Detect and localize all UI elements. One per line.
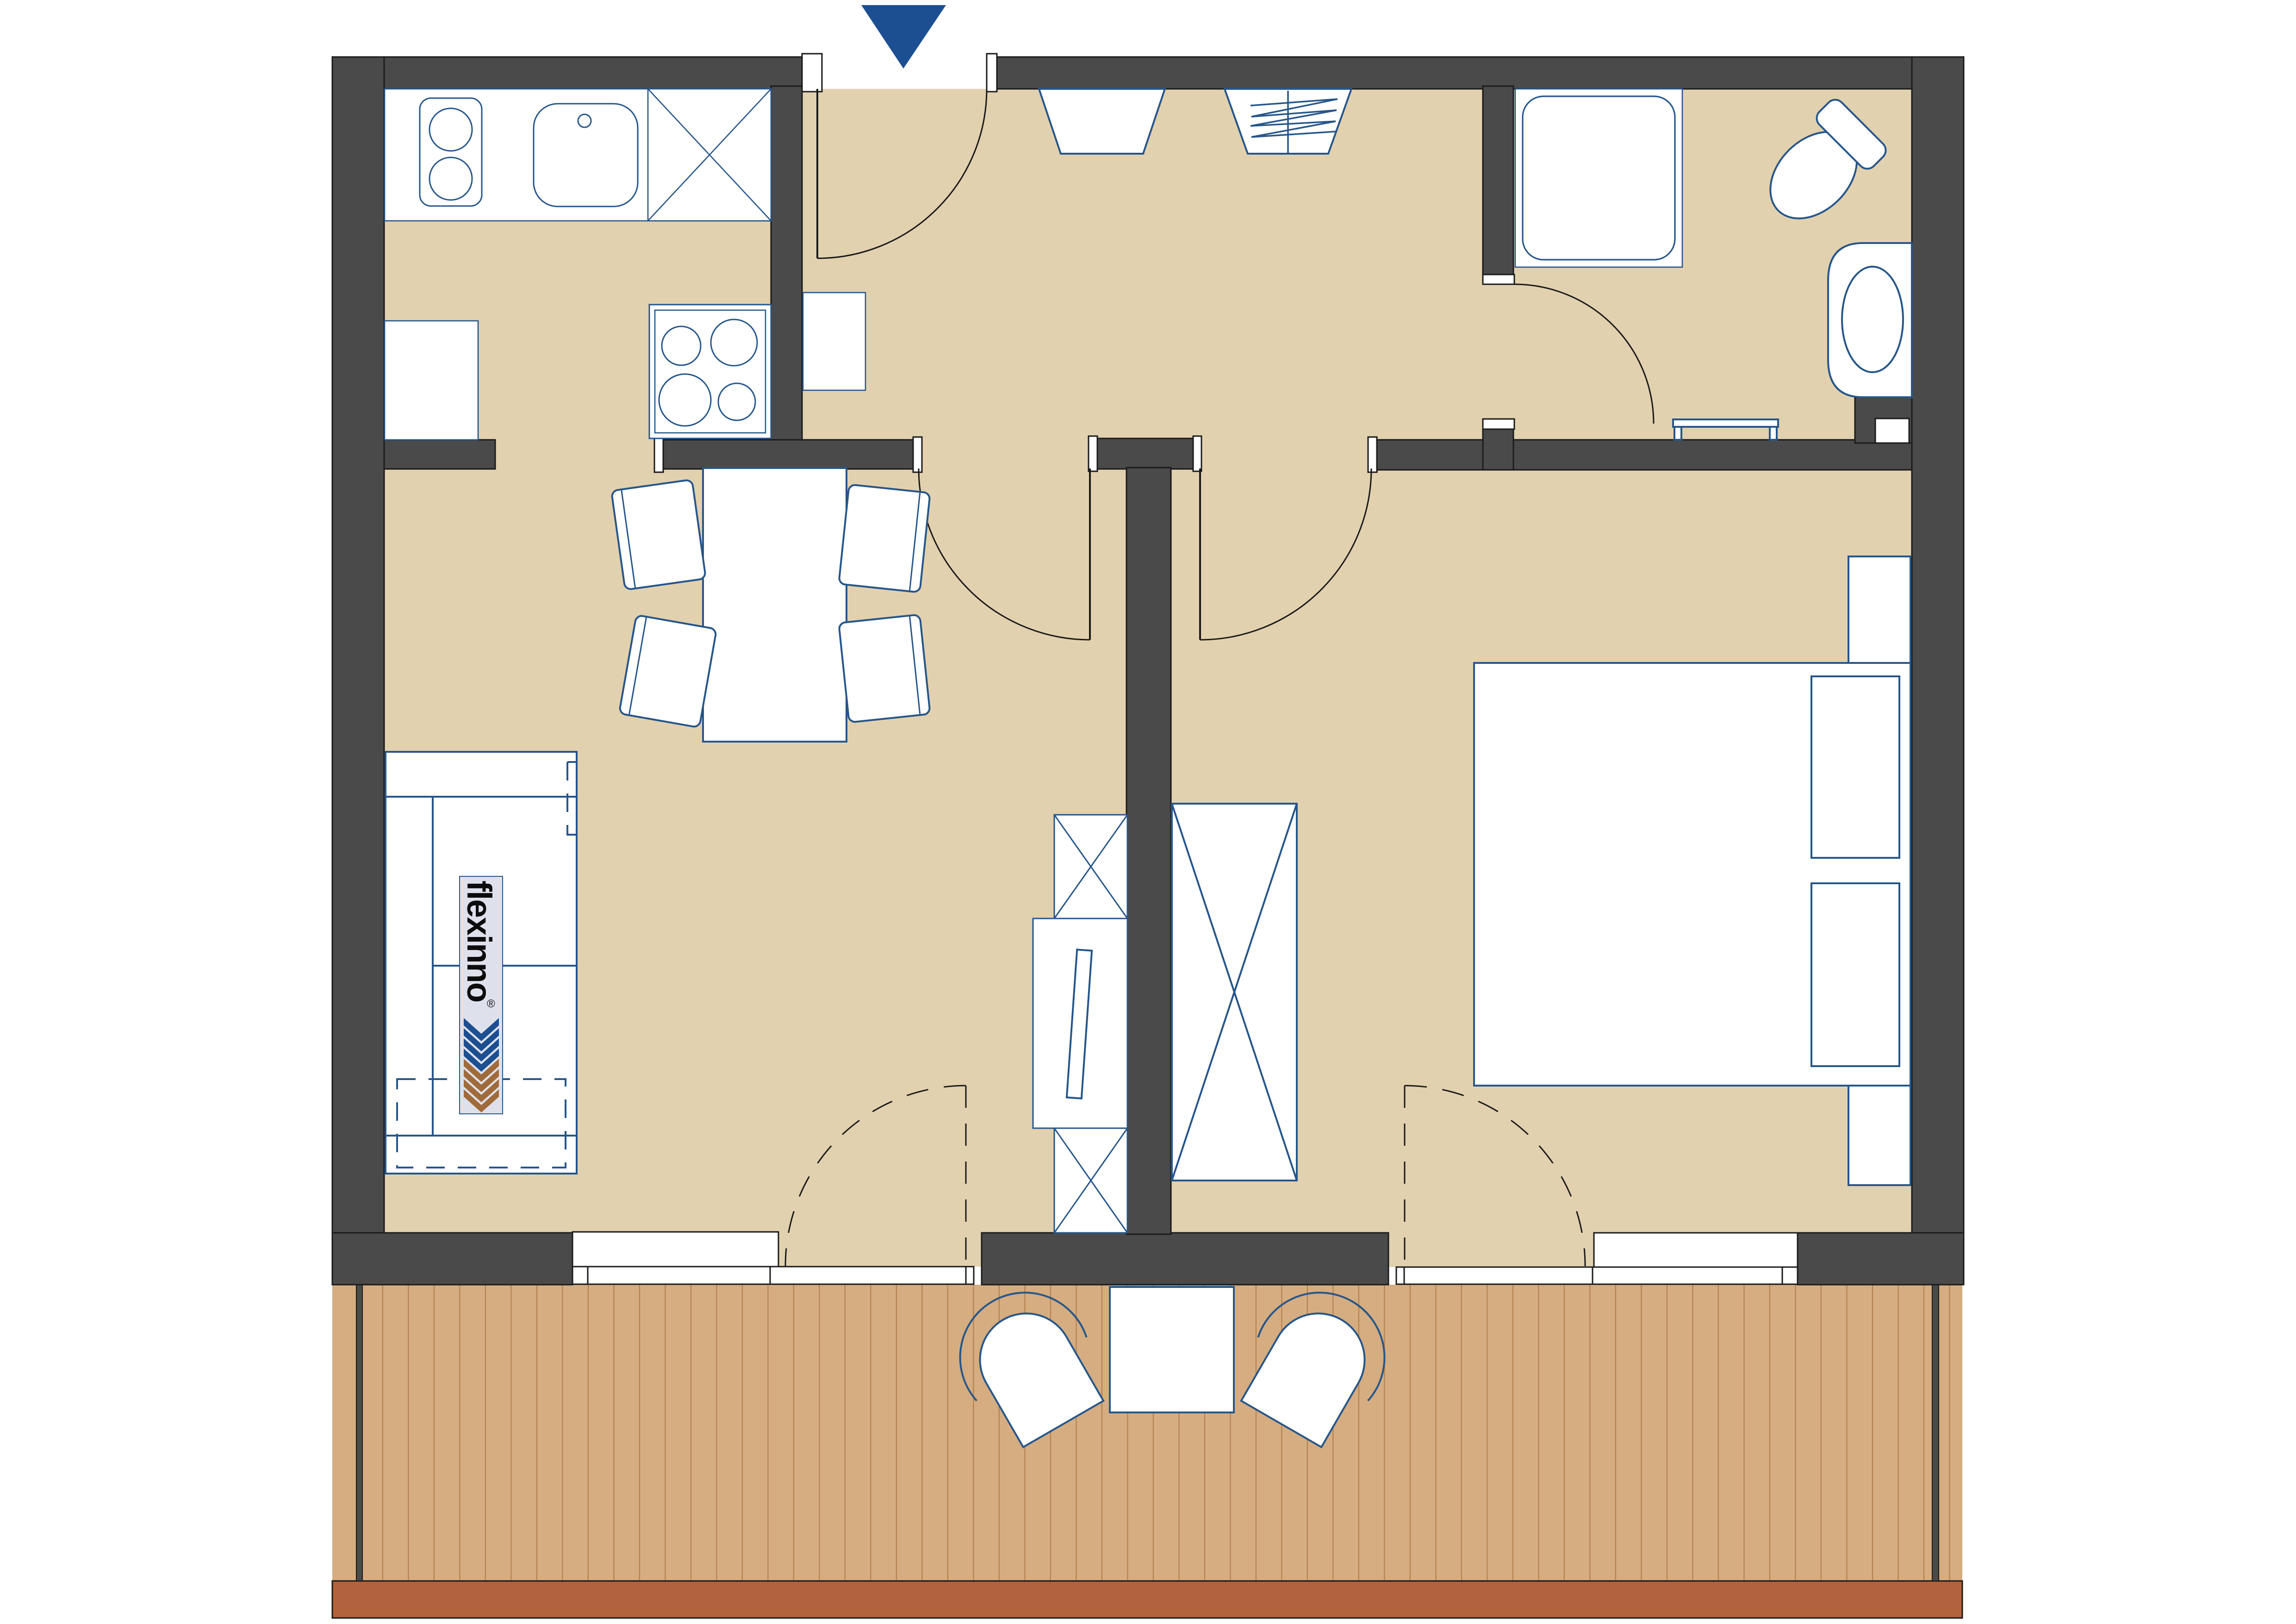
svg-text:flexinno: flexinno (460, 881, 498, 1002)
svg-text:®: ® (487, 998, 495, 1010)
